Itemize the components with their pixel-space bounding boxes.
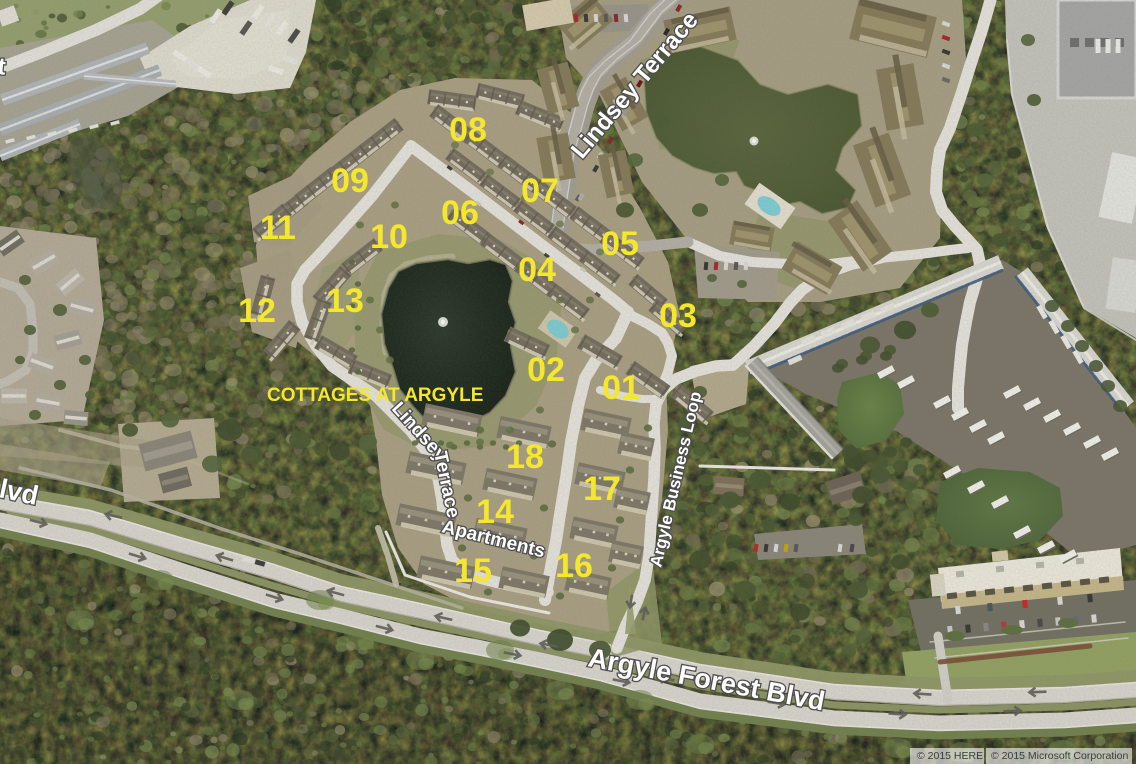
svg-text:18: 18 bbox=[506, 438, 544, 476]
svg-text:13: 13 bbox=[326, 282, 364, 320]
svg-text:10: 10 bbox=[370, 218, 408, 256]
svg-text:01: 01 bbox=[602, 369, 640, 407]
svg-text:COTTAGES AT ARGYLE: COTTAGES AT ARGYLE bbox=[267, 385, 483, 406]
svg-text:17: 17 bbox=[583, 470, 621, 508]
svg-text:06: 06 bbox=[441, 194, 479, 232]
svg-text:03: 03 bbox=[659, 297, 697, 335]
svg-text:16: 16 bbox=[555, 547, 593, 585]
svg-text:02: 02 bbox=[527, 351, 565, 389]
svg-text:07: 07 bbox=[521, 172, 559, 210]
svg-text:09: 09 bbox=[331, 162, 369, 200]
svg-text:05: 05 bbox=[601, 225, 639, 263]
svg-text:© 2015 HERE: © 2015 HERE bbox=[917, 750, 983, 762]
svg-text:11: 11 bbox=[260, 209, 296, 247]
svg-text:12: 12 bbox=[238, 292, 276, 330]
svg-text:04: 04 bbox=[518, 251, 556, 289]
svg-text:08: 08 bbox=[449, 111, 487, 149]
svg-text:© 2015 Microsoft Corporation: © 2015 Microsoft Corporation bbox=[991, 750, 1128, 762]
svg-text:15: 15 bbox=[454, 552, 492, 590]
